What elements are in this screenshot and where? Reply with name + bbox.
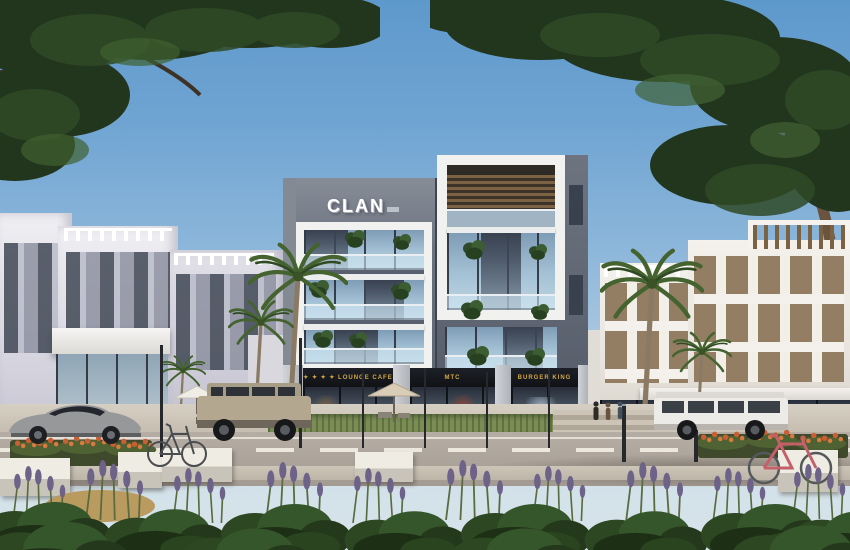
pergola-fascia (447, 165, 555, 175)
left-podium-canopy (52, 328, 170, 354)
lamp-post-2 (362, 372, 364, 448)
patio-umbrella-central (366, 380, 422, 424)
lamp-post-4 (486, 372, 488, 448)
suv-beige (193, 378, 315, 444)
right-near-roof-pergola (748, 220, 850, 249)
storefront-sign-mtc-text: MTC (445, 375, 461, 381)
storefront-sign-burger-text: BURGER KING (518, 375, 572, 381)
left-building-b-roof-pergola (64, 228, 172, 241)
storefront-sign-burger: BURGER KING (511, 368, 578, 387)
scene-canvas: CLAN (0, 0, 850, 550)
foreground-vegetation (0, 458, 850, 550)
storefront-sign-mtc: MTC (410, 368, 495, 387)
left-building-b-windows (66, 252, 170, 338)
lamp-post-3 (424, 368, 426, 448)
pedestrians (590, 400, 630, 428)
lamp-post-5 (548, 368, 550, 448)
sports-car-gray (5, 393, 145, 445)
